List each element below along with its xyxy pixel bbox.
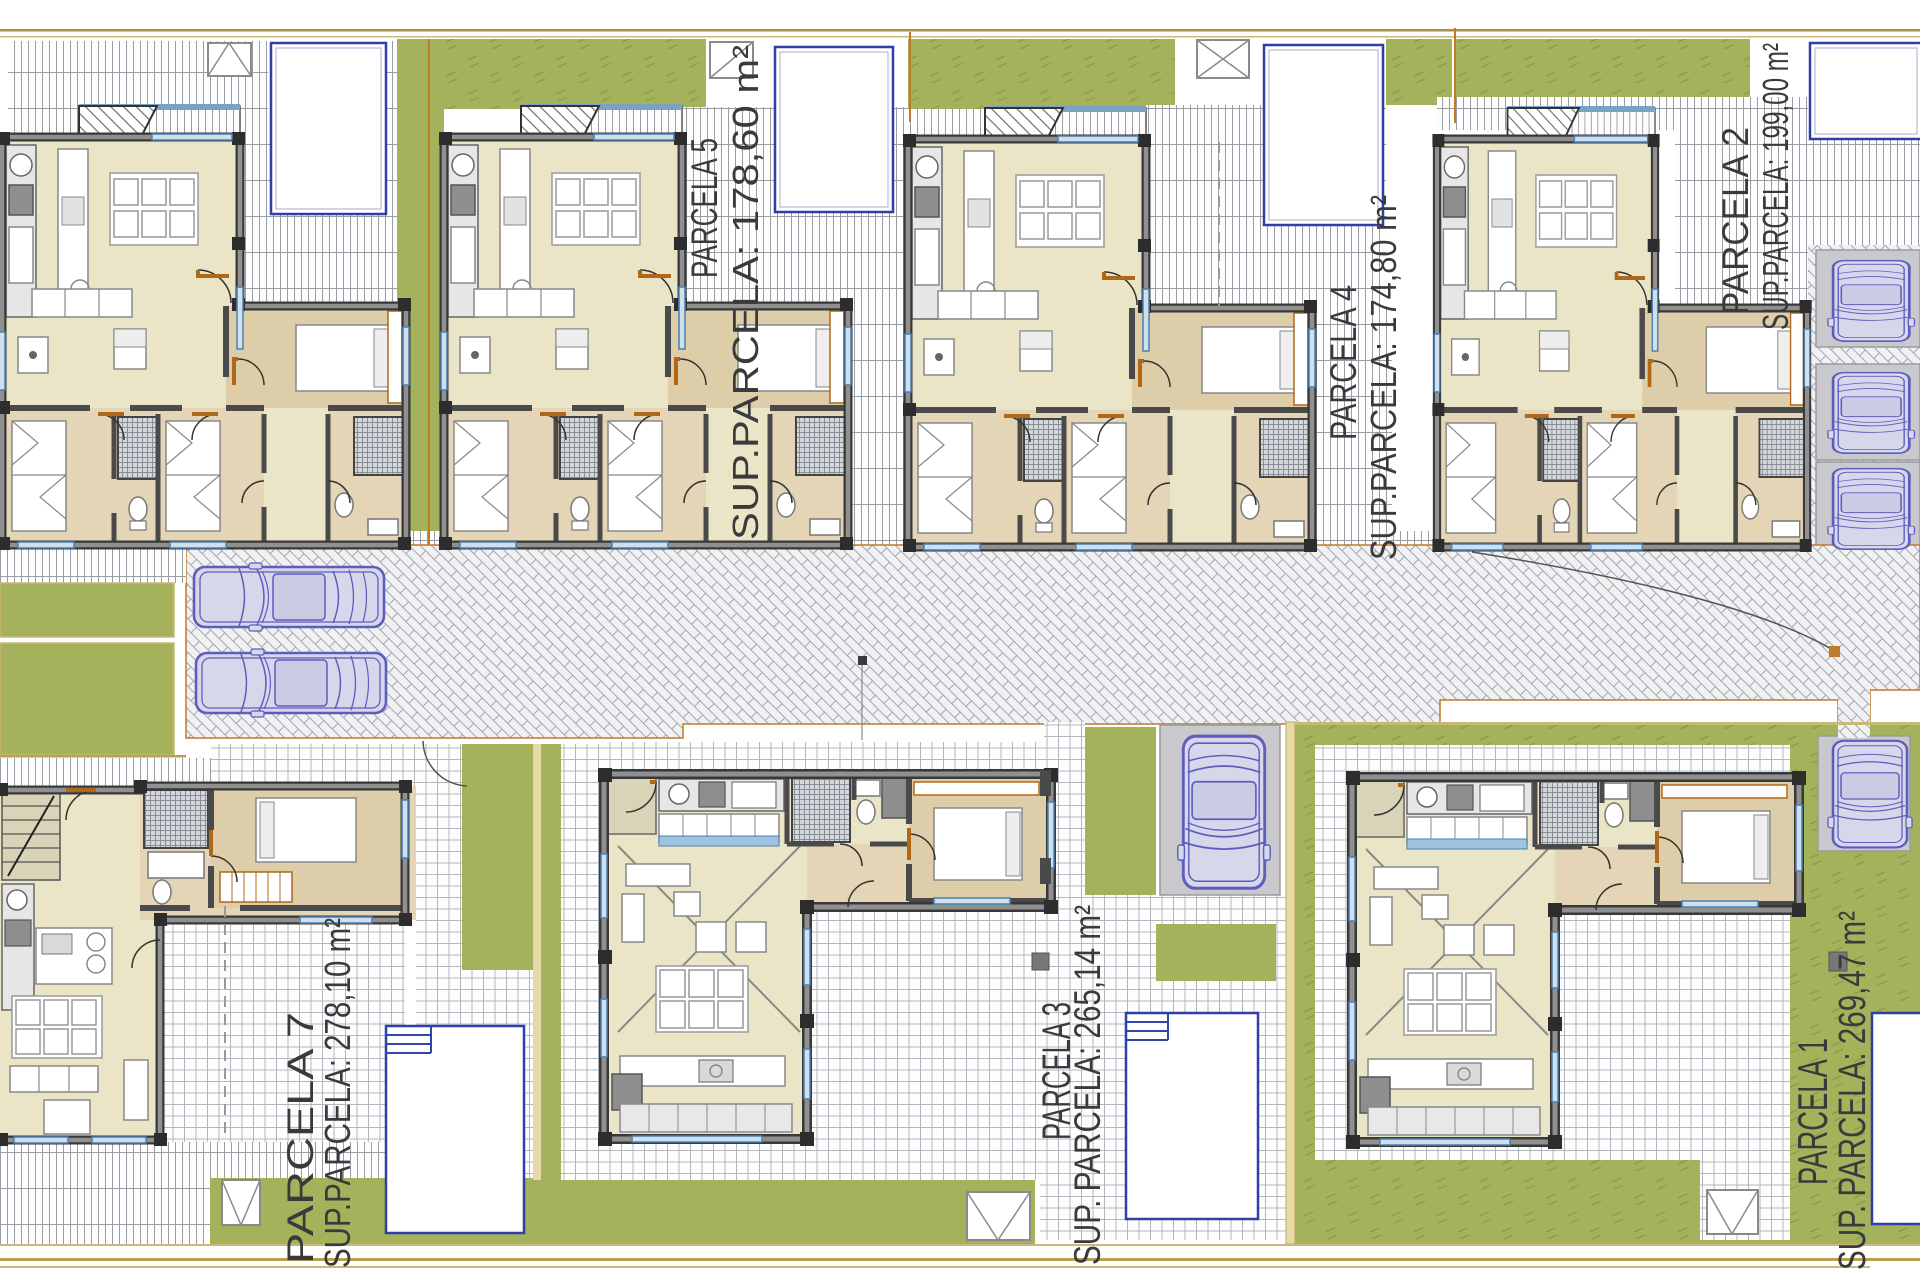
- svg-text:SUP.PARCELA: 278,10 m²: SUP.PARCELA: 278,10 m²: [317, 918, 358, 1268]
- svg-text:SUP.PARCELA: 178,60 m²: SUP.PARCELA: 178,60 m²: [725, 45, 766, 540]
- svg-text:SUP.PARCELA: 199,00 m²: SUP.PARCELA: 199,00 m²: [1755, 43, 1796, 330]
- svg-text:PARCELA 4: PARCELA 4: [1323, 285, 1364, 440]
- svg-text:SUP. PARCELA: 269,47 m²: SUP. PARCELA: 269,47 m²: [1832, 911, 1874, 1270]
- svg-text:PARCELA 2: PARCELA 2: [1715, 127, 1756, 315]
- svg-text:PARCELA 7: PARCELA 7: [280, 1012, 321, 1264]
- svg-text:PARCELA 1: PARCELA 1: [1789, 1038, 1836, 1185]
- svg-text:PARCELA 5: PARCELA 5: [684, 138, 725, 278]
- svg-text:SUP.PARCELA: 174,80 m²: SUP.PARCELA: 174,80 m²: [1363, 195, 1404, 560]
- svg-text:SUP. PARCELA: 265,14 m²: SUP. PARCELA: 265,14 m²: [1067, 905, 1108, 1265]
